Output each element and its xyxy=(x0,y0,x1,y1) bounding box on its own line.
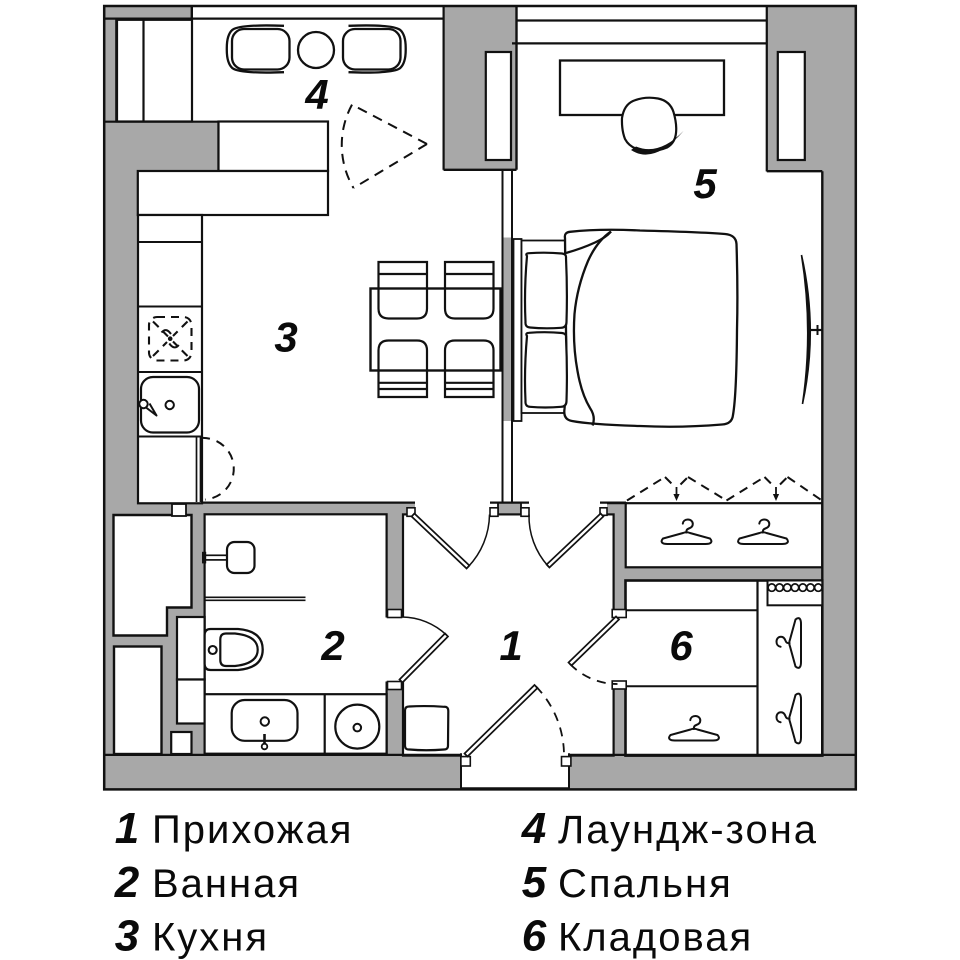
svg-text:Ванная: Ванная xyxy=(152,862,301,906)
svg-text:3: 3 xyxy=(115,912,139,960)
svg-text:6: 6 xyxy=(669,622,693,669)
svg-text:1: 1 xyxy=(499,622,522,669)
svg-text:4: 4 xyxy=(521,804,546,853)
svg-text:1: 1 xyxy=(115,804,139,853)
svg-text:6: 6 xyxy=(522,912,547,960)
svg-text:2: 2 xyxy=(114,858,140,907)
svg-text:Лаундж-зона: Лаундж-зона xyxy=(558,808,818,852)
svg-text:Кухня: Кухня xyxy=(152,916,269,960)
svg-text:5: 5 xyxy=(522,858,547,907)
svg-text:5: 5 xyxy=(693,160,717,207)
svg-text:3: 3 xyxy=(274,314,297,361)
svg-text:Прихожая: Прихожая xyxy=(152,808,353,852)
svg-text:4: 4 xyxy=(304,71,328,118)
svg-text:Спальня: Спальня xyxy=(558,862,733,906)
svg-text:Кладовая: Кладовая xyxy=(558,916,753,960)
svg-text:2: 2 xyxy=(320,622,344,669)
